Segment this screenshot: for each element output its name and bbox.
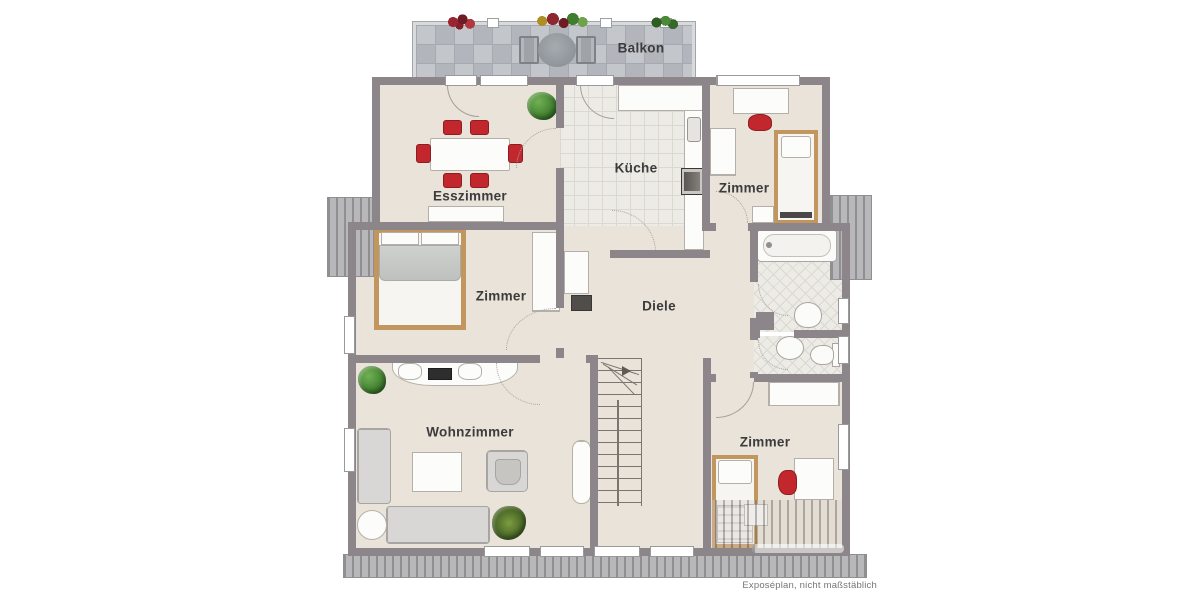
window (716, 75, 800, 86)
bathtub-faucet-icon (766, 242, 772, 248)
wall (702, 85, 710, 231)
desk-chair (398, 363, 422, 380)
folding-door (572, 440, 591, 504)
bed-pillow (421, 232, 459, 245)
wall (348, 355, 540, 363)
window (540, 546, 584, 557)
desk-chair (458, 363, 482, 380)
staircase-direction-arrow (622, 366, 631, 376)
flower-box-icon (534, 11, 588, 31)
nightstand (752, 206, 774, 223)
railing-post (600, 18, 612, 28)
coffee-table (412, 452, 462, 492)
room-label-diele: Diele (642, 299, 676, 314)
dining-chair (470, 173, 489, 188)
bed-pillow (381, 232, 419, 245)
kitchen-counter-top (618, 85, 704, 111)
roof-slope-hatch-bottom (343, 554, 867, 578)
wall (556, 85, 564, 128)
roof-slope-hatch-zimmer-sued (707, 500, 846, 548)
window (594, 546, 640, 557)
wall (703, 358, 711, 548)
plant-icon (527, 92, 557, 120)
wall (750, 318, 758, 340)
toilet-bowl (810, 345, 834, 365)
dining-chair (416, 144, 431, 163)
window (838, 298, 849, 324)
wall (754, 374, 850, 382)
bed-pillow (781, 136, 811, 158)
diele-bath-corridor-floor (706, 231, 754, 378)
bed-footboard (780, 212, 812, 218)
wall (750, 372, 758, 378)
window (650, 546, 694, 557)
staircase (596, 358, 642, 506)
room-label-zimmer-sued: Zimmer (740, 435, 791, 450)
room-label-balkon: Balkon (618, 41, 665, 56)
wall (348, 222, 564, 230)
bathtub-inner (763, 234, 831, 257)
balcony-chair (519, 36, 539, 64)
window (838, 336, 849, 364)
desk-chair (748, 114, 772, 131)
wall (590, 355, 598, 548)
flower-box-icon (649, 14, 679, 31)
kitchen-stove (681, 168, 703, 195)
wall (703, 374, 716, 382)
wall (372, 77, 380, 230)
balcony-door (576, 75, 614, 86)
armchair-cushion (495, 459, 521, 485)
wall-pier (756, 312, 774, 330)
room-label-esszimmer: Esszimmer (433, 189, 507, 204)
window (480, 75, 528, 86)
room-label-zimmer-west: Zimmer (476, 289, 527, 304)
sofa (386, 506, 490, 544)
kitchen-sink (687, 117, 701, 142)
wall (750, 231, 758, 282)
bed-duvet (379, 245, 461, 281)
dining-chair (470, 120, 489, 135)
hall-chest (571, 295, 592, 311)
wall (348, 222, 356, 556)
desk (733, 88, 789, 114)
bed-pillow (718, 460, 752, 484)
desk (794, 458, 834, 500)
wall (748, 223, 850, 231)
corner-sofa (357, 428, 391, 504)
room-label-zimmer-nordost: Zimmer (719, 181, 770, 196)
window (484, 546, 530, 557)
tv-icon (428, 368, 452, 380)
wardrobe (710, 128, 736, 176)
watermark (752, 544, 844, 553)
wall (842, 231, 850, 556)
balcony-chair (576, 36, 596, 64)
wall (822, 77, 830, 231)
wall (610, 250, 710, 258)
wall (556, 168, 564, 308)
flower-box-icon (445, 13, 477, 31)
window (838, 424, 849, 470)
room-label-kueche: Küche (615, 161, 658, 176)
dining-table (430, 138, 510, 171)
wardrobe (768, 382, 840, 406)
wall (556, 348, 564, 358)
window (344, 316, 355, 354)
dining-chair (443, 173, 462, 188)
railing-post (487, 18, 499, 28)
balcony-table (538, 33, 576, 67)
sideboard (428, 206, 504, 222)
side-table-round (357, 510, 387, 540)
bathroom-sink (794, 302, 822, 328)
room-label-wohnzimmer: Wohnzimmer (426, 425, 514, 440)
dining-chair (443, 120, 462, 135)
staircase-rail (617, 400, 619, 506)
plant-icon (358, 366, 386, 394)
balcony-door (445, 75, 477, 86)
desk-chair (778, 470, 797, 495)
window (344, 428, 355, 472)
hall-cabinet (564, 251, 589, 294)
floorplan-canvas: Balkon Esszimmer Küche Zimmer (0, 0, 1200, 600)
footer-disclaimer: Exposéplan, nicht maßstäblich (600, 580, 877, 591)
